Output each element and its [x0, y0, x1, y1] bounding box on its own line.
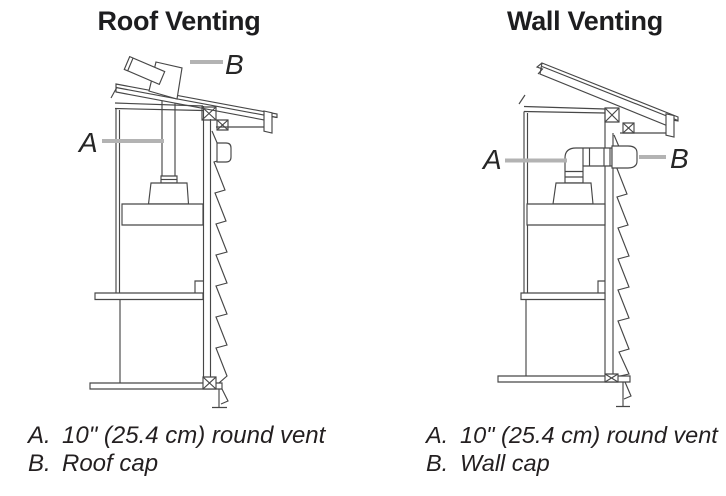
range-hood — [122, 176, 203, 225]
legend-marker: B. — [426, 450, 460, 478]
wall-cap — [612, 146, 637, 168]
floor-and-ground — [498, 374, 631, 407]
manual-venting-figure: Roof Venting Wall Venting — [0, 0, 726, 496]
floor-and-ground — [90, 377, 228, 408]
fascia-board — [666, 114, 674, 137]
wall-structure — [202, 106, 264, 377]
fascia-board — [264, 111, 272, 133]
legend-marker: A. — [28, 422, 62, 450]
roof-structure — [537, 63, 678, 137]
legend-text: Roof cap — [62, 450, 158, 478]
range-hood — [527, 183, 605, 225]
legend-marker: B. — [28, 450, 62, 478]
wall-venting-drawing: A B — [481, 63, 689, 407]
legend-text: 10" (25.4 cm) round vent — [62, 422, 325, 450]
roof-venting-drawing: A B — [77, 49, 277, 408]
counter-and-cabinet — [521, 281, 605, 376]
label-a: A — [77, 127, 98, 158]
legend-text: Wall cap — [460, 450, 550, 478]
siding — [212, 131, 227, 383]
outlet-box — [217, 143, 231, 162]
siding — [614, 135, 629, 376]
legend-item-b: B. Wall cap — [426, 450, 718, 478]
roof-venting-legend: A. 10" (25.4 cm) round vent B. Roof cap — [28, 422, 325, 477]
label-b: B — [670, 143, 689, 174]
label-b: B — [225, 49, 244, 80]
wall-venting-legend: A. 10" (25.4 cm) round vent B. Wall cap — [426, 422, 718, 477]
label-a: A — [481, 144, 502, 175]
counter-and-cabinet — [95, 281, 203, 383]
legend-item-a: A. 10" (25.4 cm) round vent — [426, 422, 718, 450]
legend-text: 10" (25.4 cm) round vent — [460, 422, 718, 450]
legend-marker: A. — [426, 422, 460, 450]
legend-item-a: A. 10" (25.4 cm) round vent — [28, 422, 325, 450]
legend-item-b: B. Roof cap — [28, 450, 325, 478]
